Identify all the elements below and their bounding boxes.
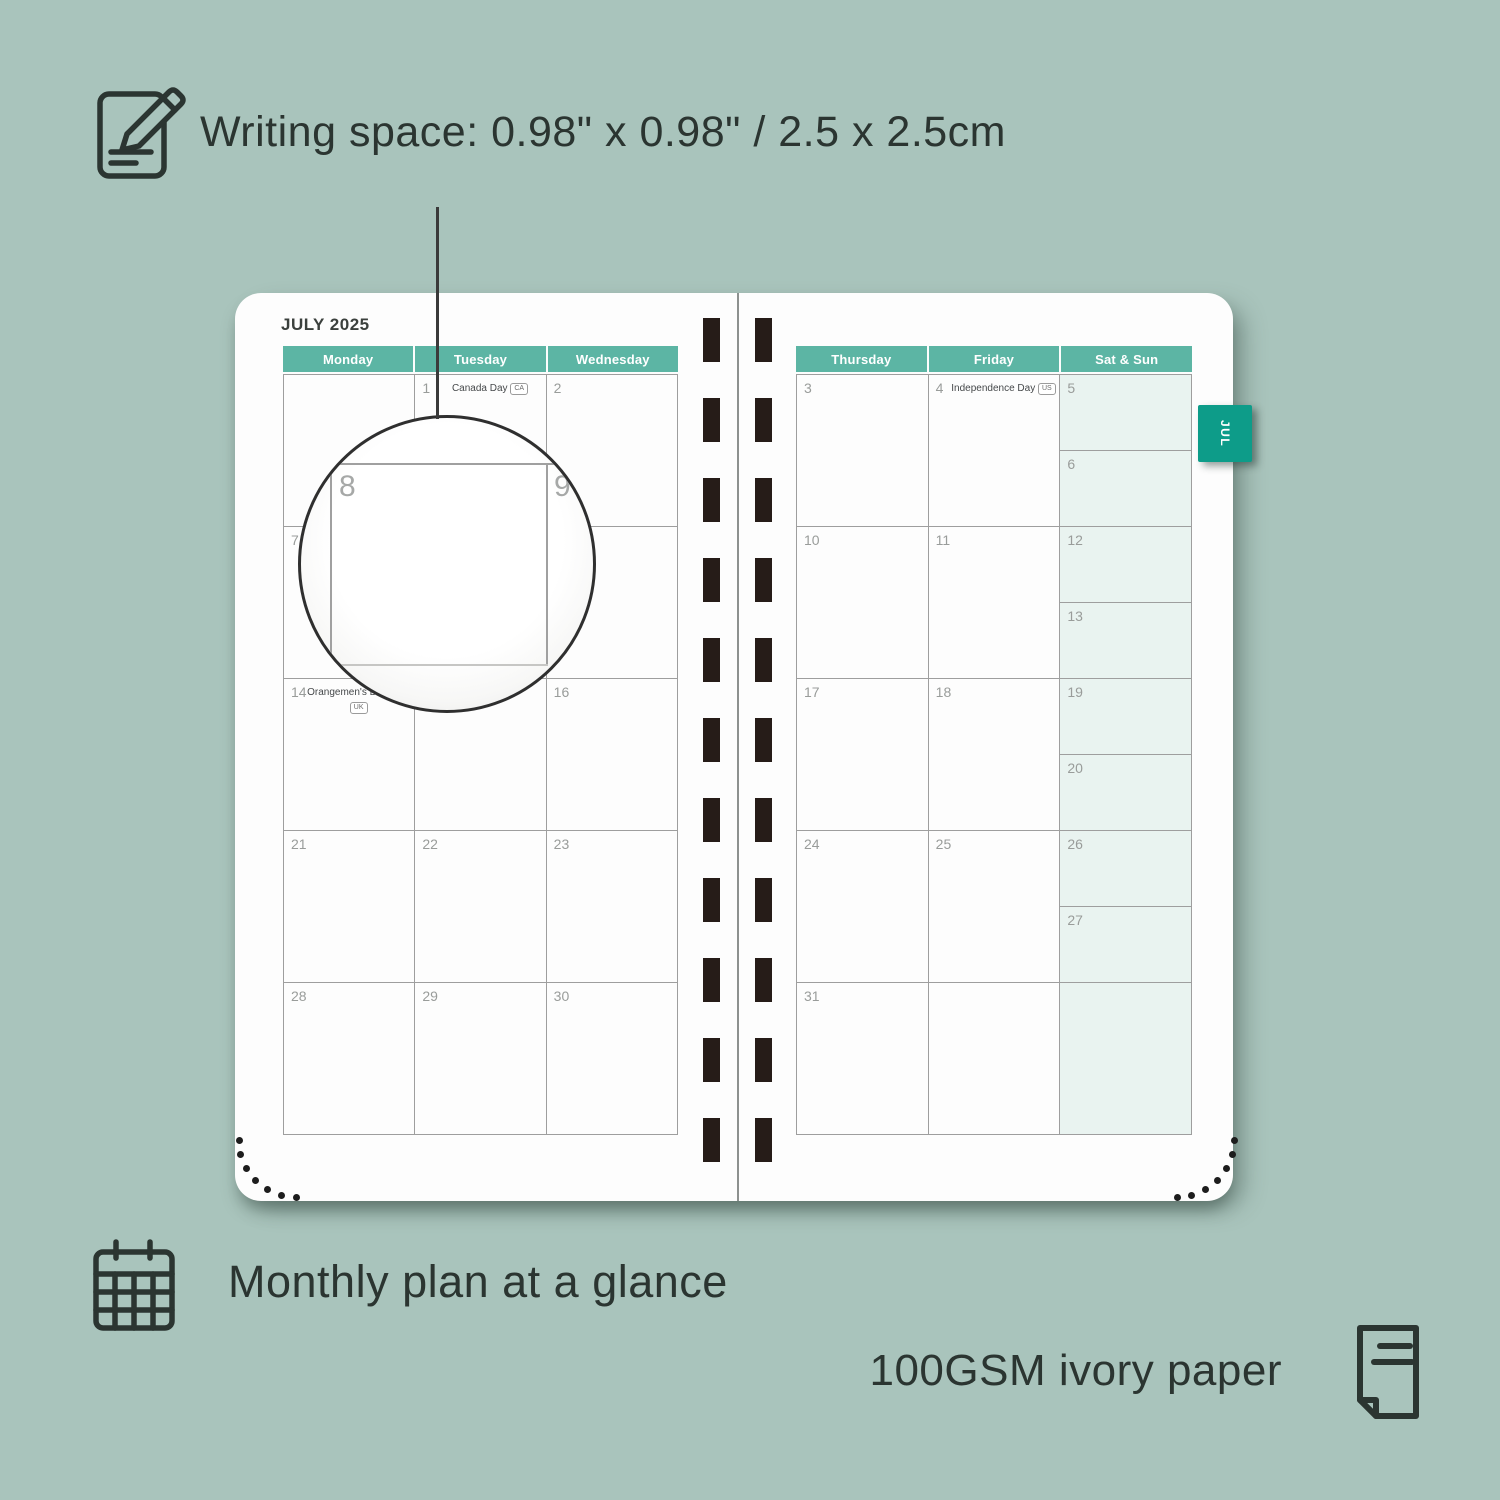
weekend-half: 20 (1060, 755, 1191, 831)
paper-sheet-icon (1322, 1320, 1442, 1444)
spine-staple (755, 478, 772, 522)
day-cell: 23 (547, 831, 678, 983)
spine-staple (703, 1038, 720, 1082)
day-cell: 11 (929, 527, 1061, 679)
weekend-half: 26 (1060, 831, 1191, 907)
left-page-header-row: MondayTuesdayWednesday (283, 346, 678, 372)
day-number: 19 (1067, 684, 1083, 700)
spine-staple (755, 878, 772, 922)
spine-staple (755, 798, 772, 842)
weekend-cell: 56 (1060, 375, 1192, 527)
corner-dot (1229, 1151, 1236, 1158)
corner-dot (264, 1186, 271, 1193)
corner-dot (236, 1137, 243, 1144)
holiday-label: Canada Day CA (437, 381, 542, 396)
corner-dot (1188, 1192, 1195, 1199)
spine-staple (703, 958, 720, 1002)
day-cell: 18 (929, 679, 1061, 831)
day-number: 16 (554, 684, 570, 700)
weekend-cell: 2627 (1060, 831, 1192, 983)
spine-staple (703, 478, 720, 522)
weekday-header: Friday (929, 346, 1060, 372)
magnified-cell-bottom-border (330, 664, 548, 666)
right-page-header-row: ThursdayFridaySat & Sun (796, 346, 1192, 372)
corner-dot (1174, 1194, 1181, 1201)
magnified-cell-right-border (546, 463, 548, 665)
day-number: 13 (1067, 608, 1083, 624)
spine-staple (755, 558, 772, 602)
magnifier-circle: 8 9 (298, 415, 596, 713)
day-number: 31 (804, 988, 820, 1004)
weekend-half: 19 (1060, 679, 1191, 755)
paper-caption: 100GSM ivory paper (600, 1346, 1282, 1396)
day-number: 29 (422, 988, 438, 1004)
day-number: 3 (804, 380, 812, 396)
day-cell: 22 (415, 831, 546, 983)
corner-dot (1223, 1165, 1230, 1172)
day-number: 22 (422, 836, 438, 852)
spine-staple (703, 558, 720, 602)
day-number: 7 (291, 532, 299, 548)
day-number: 20 (1067, 760, 1083, 776)
weekday-header: Wednesday (548, 346, 678, 372)
notepad-pencil-icon (90, 80, 190, 185)
day-number: 28 (291, 988, 307, 1004)
product-image-canvas: Writing space: 0.98" x 0.98" / 2.5 x 2.5… (0, 0, 1500, 1500)
holiday-label: Independence Day US (951, 381, 1057, 396)
weekend-half: 13 (1060, 603, 1191, 679)
day-number: 24 (804, 836, 820, 852)
weekend-half: 27 (1060, 907, 1191, 983)
weekday-header: Tuesday (415, 346, 545, 372)
day-cell: 25 (929, 831, 1061, 983)
spine-staple (703, 318, 720, 362)
writing-space-caption: Writing space: 0.98" x 0.98" / 2.5 x 2.5… (200, 108, 1006, 157)
spine-staple (703, 1118, 720, 1162)
corner-dot (1202, 1186, 1209, 1193)
weekend-cell: 1920 (1060, 679, 1192, 831)
day-number: 25 (936, 836, 952, 852)
day-cell: 31 (797, 983, 929, 1135)
day-cell: 24 (797, 831, 929, 983)
spine-staple (755, 1118, 772, 1162)
gutter-seam (737, 293, 739, 1201)
day-number: 14 (291, 684, 307, 700)
corner-dot (1231, 1137, 1238, 1144)
day-cell: 29 (415, 983, 546, 1135)
spine-staple (703, 638, 720, 682)
weekday-header: Thursday (796, 346, 927, 372)
day-cell: 28 (284, 983, 415, 1135)
weekend-full (1060, 983, 1191, 1134)
day-number: 17 (804, 684, 820, 700)
magnifier-pointer-line (436, 207, 439, 419)
holiday-badge: US (1038, 383, 1056, 395)
weekend-half: 5 (1060, 375, 1191, 451)
magnified-adjacent-day-number: 9 (554, 470, 571, 504)
corner-dot (252, 1177, 259, 1184)
spine-staple (755, 318, 772, 362)
day-number: 18 (936, 684, 952, 700)
day-number: 23 (554, 836, 570, 852)
spine-staple (755, 398, 772, 442)
day-number: 12 (1067, 532, 1083, 548)
corner-dot (1214, 1177, 1221, 1184)
weekend-cell: 1213 (1060, 527, 1192, 679)
day-number: 21 (291, 836, 307, 852)
spine-staple (703, 398, 720, 442)
day-number: 11 (936, 532, 951, 548)
day-cell: 4Independence Day US (929, 375, 1061, 527)
day-cell: 10 (797, 527, 929, 679)
weekday-header: Sat & Sun (1061, 346, 1192, 372)
calendar-grid-icon (85, 1237, 183, 1337)
magnified-day-number: 8 (339, 470, 356, 504)
monthly-plan-caption: Monthly plan at a glance (228, 1256, 728, 1308)
day-cell (929, 983, 1061, 1135)
day-cell: 17 (797, 679, 929, 831)
spine-staple (703, 718, 720, 762)
day-number: 26 (1067, 836, 1083, 852)
weekday-header: Monday (283, 346, 413, 372)
spine-staple (755, 1038, 772, 1082)
spine-staple (755, 958, 772, 1002)
spine-staple (703, 798, 720, 842)
day-number: 10 (804, 532, 820, 548)
spine-staple (703, 878, 720, 922)
spine-staple (755, 718, 772, 762)
month-tab: JUL (1198, 405, 1252, 462)
day-cell: 3 (797, 375, 929, 527)
day-number: 4 (936, 380, 944, 396)
corner-dot (278, 1192, 285, 1199)
day-number: 30 (554, 988, 570, 1004)
day-number: 2 (554, 380, 562, 396)
day-number: 6 (1067, 456, 1075, 472)
holiday-badge: UK (350, 702, 368, 714)
day-number: 1 (422, 380, 430, 396)
weekend-cell (1060, 983, 1192, 1135)
holiday-badge: CA (510, 383, 528, 395)
corner-dot (293, 1194, 300, 1201)
day-number: 5 (1067, 380, 1075, 396)
day-cell: 21 (284, 831, 415, 983)
day-cell: 16 (547, 679, 678, 831)
magnified-row-border (301, 463, 593, 465)
right-page-grid: 34Independence Day US5610111213171819202… (796, 374, 1192, 1135)
magnified-cell-left-border (330, 463, 332, 665)
month-tab-label: JUL (1218, 420, 1232, 447)
weekend-half: 6 (1060, 451, 1191, 527)
month-title: JULY 2025 (281, 315, 370, 335)
day-cell: 30 (547, 983, 678, 1135)
weekend-half: 12 (1060, 527, 1191, 603)
day-number: 27 (1067, 912, 1083, 928)
spine-staple (755, 638, 772, 682)
right-page: ThursdayFridaySat & Sun 34Independence D… (796, 346, 1192, 1135)
